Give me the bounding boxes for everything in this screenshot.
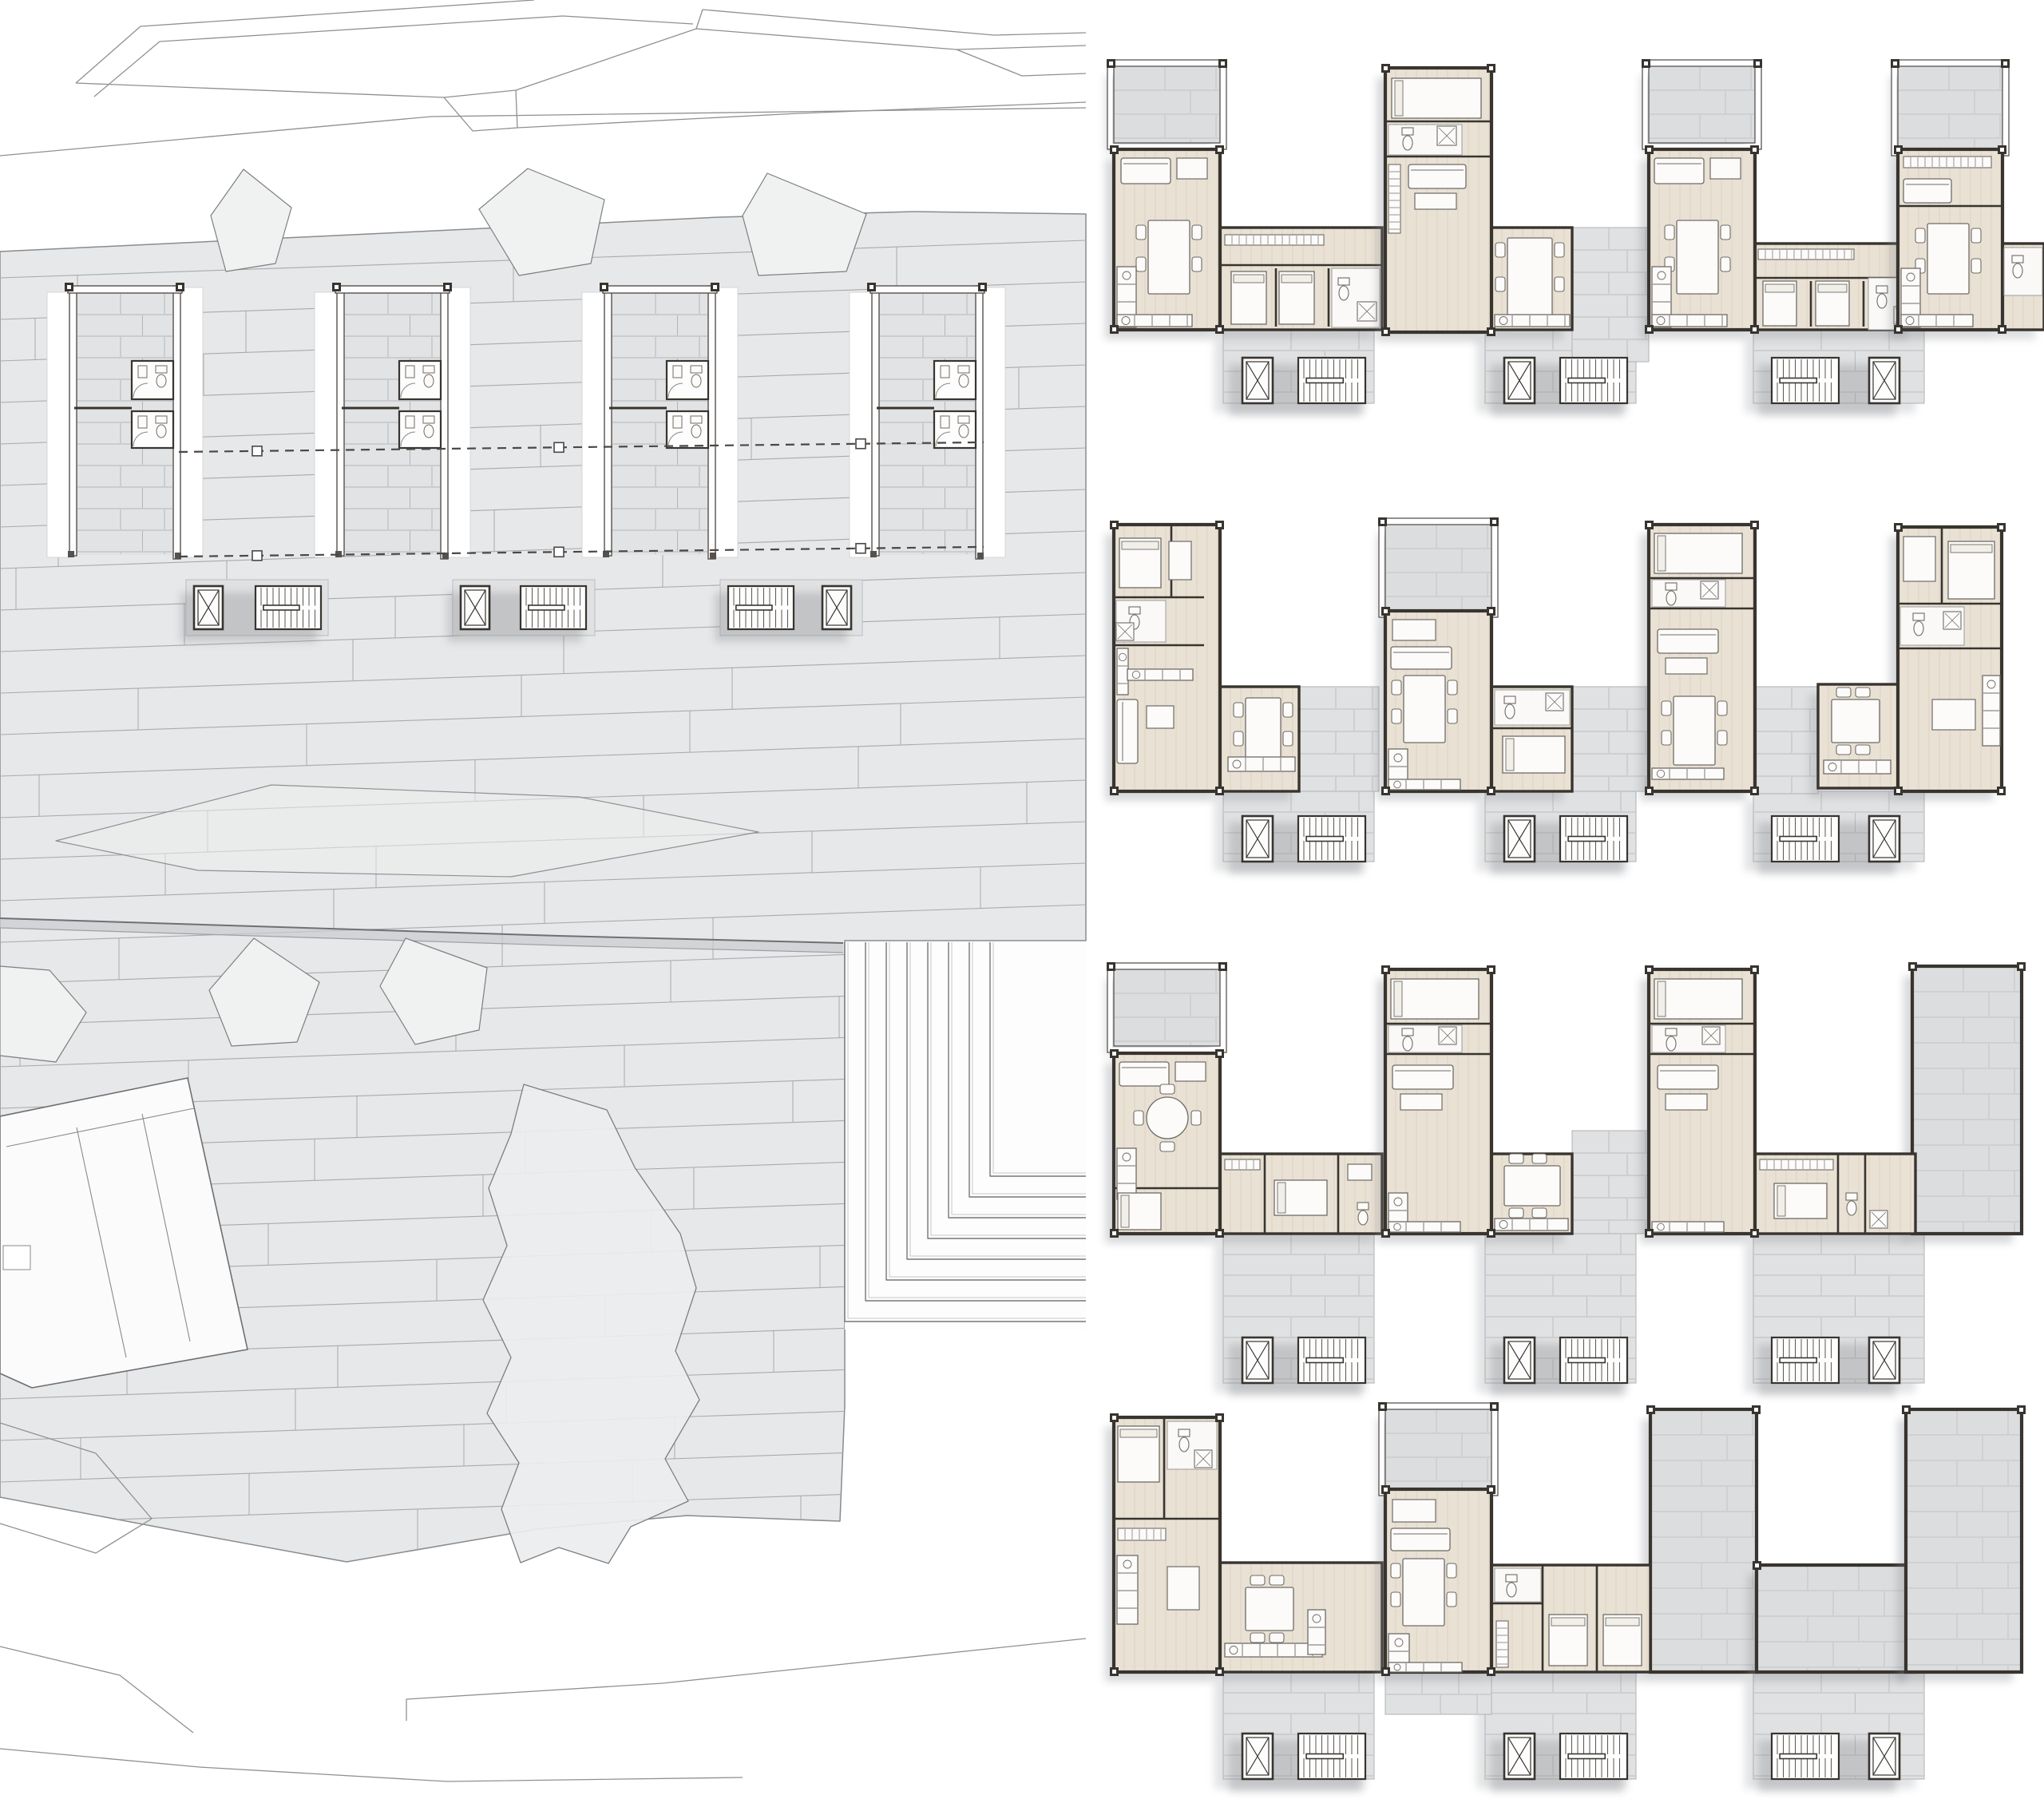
walled-terrace — [1748, 1561, 1919, 1682]
wall-post — [1997, 523, 2006, 532]
toilet-tank — [1876, 286, 1888, 293]
furniture-sofa — [1392, 1065, 1453, 1089]
post-inner — [980, 285, 984, 289]
post-inner — [1904, 1408, 1908, 1412]
stair-run — [1772, 358, 1839, 403]
pod-sink — [406, 366, 414, 378]
post-inner — [1218, 1052, 1222, 1056]
bed-pillow — [1658, 981, 1666, 1016]
toilet-bowl — [691, 374, 701, 387]
toilet-tank — [958, 366, 969, 373]
tile-slab — [1385, 1409, 1491, 1489]
counter-body — [1117, 315, 1192, 327]
post-inner — [2000, 148, 2004, 152]
furniture-chair — [1532, 1154, 1547, 1163]
furniture-sideboard — [1415, 193, 1456, 209]
stair-run — [1298, 358, 1365, 403]
furniture-sofa — [1654, 158, 1704, 184]
toilet-tank — [1402, 128, 1413, 135]
tile-slab — [1114, 969, 1220, 1046]
toilet-fixture — [1178, 1429, 1190, 1452]
wall-post — [1902, 1405, 1911, 1414]
bathroom-pod — [934, 361, 976, 399]
wall-post — [1381, 1485, 1390, 1494]
wall-post — [1998, 145, 2006, 154]
furniture-sideboard — [1710, 158, 1741, 179]
counter-body — [1117, 1148, 1136, 1199]
bed-pillow — [1506, 739, 1514, 771]
tile-slab — [1572, 1131, 1649, 1234]
tile-slab — [1906, 1409, 2022, 1672]
tie-marker — [554, 547, 564, 557]
wall-base-post — [710, 553, 716, 559]
post-inner — [1384, 789, 1388, 793]
contour-line — [76, 0, 534, 83]
post-inner — [2019, 1408, 2023, 1412]
bathroom-pod — [399, 361, 441, 399]
wardrobe-body — [1225, 235, 1324, 245]
circulation-core — [1758, 358, 1899, 416]
kitchen-counter — [1117, 648, 1128, 695]
wall-post — [1110, 1413, 1119, 1422]
walled-terrace — [1642, 1405, 1761, 1682]
wall-post — [1215, 1413, 1224, 1422]
wall-post — [1381, 327, 1390, 336]
circulation-core — [1229, 816, 1365, 874]
sofa-body — [1121, 158, 1171, 184]
furniture-bed — [1948, 541, 1994, 599]
terrace-gap — [315, 292, 339, 557]
table-top — [1246, 698, 1281, 765]
elevator-shaft — [1504, 1337, 1535, 1383]
wall-post — [1381, 607, 1390, 616]
wall-post — [1381, 1229, 1390, 1238]
stair-rail — [1780, 378, 1816, 383]
post-inner — [1380, 520, 1384, 524]
wall-post — [1381, 787, 1390, 795]
stair-rail — [1568, 1754, 1605, 1759]
furniture-chair — [1448, 709, 1457, 723]
furniture-chair — [1509, 1154, 1523, 1163]
wall-post — [1215, 325, 1224, 334]
tie-marker — [856, 544, 866, 553]
kitchen-counter — [1652, 315, 1727, 327]
kitchen-counter — [1117, 1148, 1136, 1199]
toilet-bowl — [1403, 136, 1412, 150]
unit-wall-cap — [335, 286, 450, 293]
furniture-chair — [1160, 1142, 1175, 1151]
post-inner — [1112, 148, 1116, 152]
furniture-chair — [1270, 1575, 1284, 1585]
wall-post — [1645, 145, 1654, 154]
furniture-bed — [1603, 1615, 1642, 1666]
post-inner — [1489, 1231, 1493, 1235]
toilet-fixture — [1913, 613, 1924, 636]
apartment-unit — [1377, 965, 1572, 1243]
kitchen-counter — [1308, 1610, 1325, 1654]
tile-slab — [1757, 1565, 1915, 1672]
wall-post — [1487, 1667, 1495, 1676]
post-inner — [1893, 61, 1897, 65]
wall-post — [1487, 1229, 1495, 1238]
contour-line — [0, 108, 1086, 156]
stair-run — [1772, 816, 1839, 862]
tiled-surface — [1912, 966, 2022, 1234]
post-inner — [1647, 968, 1651, 972]
tiled-surface — [1114, 969, 1220, 1046]
pod-sink — [406, 416, 414, 428]
counter-body — [1117, 648, 1128, 695]
unit-wall — [976, 286, 983, 559]
post-inner — [1384, 1488, 1388, 1492]
terrace-gap — [582, 292, 606, 557]
stair-run — [1298, 1734, 1365, 1779]
wall-post — [1107, 962, 1115, 971]
post-inner — [1753, 1231, 1757, 1235]
post-inner — [1896, 789, 1900, 793]
unit-wall-cap — [68, 286, 182, 293]
stair-rail — [263, 605, 299, 610]
wall-post — [1378, 1402, 1387, 1411]
furniture-sofa — [1391, 1528, 1450, 1551]
pod-sink — [138, 416, 147, 428]
wall-post — [332, 283, 341, 291]
toilet-fixture — [1666, 1028, 1677, 1051]
elevator-shaft — [1242, 816, 1273, 862]
table-top — [1246, 1587, 1293, 1631]
table-top — [1148, 220, 1190, 294]
post-inner — [1112, 523, 1116, 527]
furniture-chair — [1509, 1208, 1523, 1218]
furniture-chair — [1856, 745, 1870, 755]
tiled-surface — [1757, 1565, 1915, 1672]
toilet-tank — [1506, 1575, 1517, 1582]
elevator-shaft — [1869, 816, 1899, 862]
furniture-sideboard — [1903, 537, 1935, 581]
bed-pillow — [1281, 275, 1312, 283]
furniture-chair — [1915, 228, 1925, 243]
elevator-shaft — [1504, 1734, 1535, 1779]
wall-post — [443, 283, 452, 291]
wall-post — [1487, 1485, 1495, 1494]
post-inner — [1112, 789, 1116, 793]
furniture-chair — [1192, 225, 1202, 240]
contour-line — [76, 29, 1086, 97]
wardrobe — [1388, 164, 1400, 233]
walled-terrace — [1897, 1405, 2026, 1682]
wall-post — [1110, 1667, 1119, 1676]
tie-marker — [856, 439, 866, 449]
contour-line — [517, 102, 1086, 128]
wall-post — [1381, 1667, 1390, 1676]
stair-rail — [1780, 837, 1816, 842]
wardrobe — [1496, 1621, 1508, 1667]
toilet-bowl — [1339, 286, 1349, 300]
bathroom-pod — [399, 411, 441, 448]
wardrobe-body — [1760, 1159, 1833, 1170]
bed-pillow — [1551, 1618, 1585, 1626]
post-inner — [1221, 965, 1225, 969]
wall-post — [1215, 787, 1224, 795]
counter-body — [1117, 1555, 1138, 1624]
furniture-bed — [1503, 736, 1565, 773]
toilet-fixture — [1666, 583, 1677, 605]
post-inner — [1753, 523, 1757, 527]
post-inner — [1112, 1670, 1116, 1674]
shower-fixture — [1439, 1027, 1456, 1044]
furniture-chair — [1662, 701, 1671, 715]
post-inner — [1384, 1670, 1388, 1674]
pod-sink — [941, 366, 949, 378]
kitchen-counter — [1228, 757, 1295, 771]
shower-fixture — [1546, 693, 1563, 711]
tiled-surface — [1299, 687, 1379, 791]
pod-sink — [941, 416, 949, 428]
furniture-bed — [1118, 1193, 1161, 1230]
furniture-chair — [1270, 1633, 1284, 1643]
kitchen-counter — [1117, 315, 1192, 327]
post-inner — [1489, 1670, 1493, 1674]
tile-slab — [1649, 66, 1755, 143]
bed-pillow — [1606, 1618, 1639, 1626]
furniture-bed — [1774, 1183, 1827, 1219]
bed-frame — [1391, 979, 1479, 1019]
toilet-bowl — [424, 425, 434, 438]
counter-body — [1901, 315, 1973, 327]
wall-post — [1215, 145, 1224, 154]
post-inner — [1896, 327, 1900, 331]
post-inner — [1380, 1405, 1384, 1409]
bed-pillow — [1951, 545, 1992, 553]
wall-post — [1215, 1049, 1224, 1058]
counter-body — [1495, 1219, 1568, 1230]
roof-terrace — [1889, 59, 2010, 159]
stair-run — [1298, 816, 1365, 862]
circulation-core — [1758, 1337, 1899, 1396]
steps-ground — [845, 942, 1086, 1329]
post-inner — [1489, 1488, 1493, 1492]
site-unit-frame — [315, 283, 470, 559]
kitchen-counter — [1652, 768, 1724, 779]
stair-rail — [1780, 1358, 1816, 1363]
toilet-tank — [1178, 1429, 1190, 1436]
toilet-fixture — [1402, 128, 1413, 150]
toilet-bowl — [959, 425, 969, 438]
stair-run — [521, 586, 586, 629]
roof-terrace — [1377, 1402, 1499, 1499]
toilet-fixture — [1876, 286, 1888, 308]
post-inner — [1384, 330, 1388, 334]
tiled-surface — [1572, 687, 1649, 791]
furniture-sideboard — [1177, 158, 1207, 179]
post-inner — [1109, 965, 1113, 969]
post-inner — [1489, 330, 1493, 334]
sofa-body — [1391, 647, 1452, 669]
toilet-tank — [156, 416, 167, 423]
stair-rail — [1568, 378, 1605, 383]
furniture-chair — [1283, 703, 1293, 717]
furniture-bed — [1549, 1615, 1587, 1666]
tiled-surface — [1572, 228, 1649, 362]
shower-fixture — [1870, 1211, 1888, 1228]
furniture-bed — [1118, 1426, 1159, 1482]
kitchen-counter — [1983, 676, 2000, 746]
toilet-fixture — [1402, 1028, 1413, 1051]
furniture-chair — [1532, 1208, 1547, 1218]
furniture-sideboard — [1392, 1500, 1436, 1522]
kitchen-counter — [1388, 749, 1408, 781]
wall-post — [1750, 787, 1759, 795]
wall-post — [600, 283, 608, 291]
furniture-sofa — [1391, 647, 1452, 669]
counter-body — [1495, 315, 1570, 327]
shower-fixture — [1437, 126, 1456, 145]
terrace-gap — [47, 292, 71, 557]
kitchen-counter — [1824, 760, 1891, 774]
furniture-sofa — [1121, 158, 1171, 184]
stair-rail — [1306, 1358, 1343, 1363]
row-2 — [1105, 517, 2006, 874]
toilet-tank — [1504, 696, 1515, 703]
kitchen-counter — [1652, 1222, 1724, 1232]
wall-post — [867, 283, 876, 291]
post-inner — [1109, 61, 1113, 65]
toilet-bowl — [1505, 704, 1515, 719]
pod-sink — [673, 416, 682, 428]
post-inner — [1754, 1408, 1758, 1412]
table-top — [1504, 1166, 1560, 1206]
furniture-bed — [1392, 78, 1481, 118]
tile-slab — [1114, 66, 1220, 143]
wall-post — [1215, 521, 1224, 529]
post-inner — [1112, 1231, 1116, 1235]
elevator-shaft — [1242, 358, 1273, 403]
post-inner — [602, 285, 606, 289]
shower-fixture — [1116, 623, 1134, 640]
toilet-tank — [1913, 613, 1924, 620]
post-inner — [1489, 609, 1493, 613]
post-inner — [335, 285, 339, 289]
stair-rail — [1306, 837, 1343, 842]
wardrobe-body — [1903, 157, 1991, 168]
toilet-tank — [423, 416, 434, 423]
elevator-shaft — [1869, 1337, 1899, 1383]
toilet-bowl — [1666, 1036, 1676, 1051]
furniture-chair — [1856, 688, 1870, 697]
furniture-chair — [1495, 277, 1505, 291]
bed-frame — [1654, 533, 1742, 573]
toilet-fixture — [1504, 696, 1515, 719]
toilet-bowl — [1179, 1437, 1189, 1452]
tiled-surface — [1114, 66, 1220, 143]
toilet-tank — [1402, 1028, 1413, 1036]
wall-post — [1381, 64, 1390, 73]
floor-plans — [1105, 59, 2044, 1792]
circulation-core — [1491, 1337, 1627, 1396]
wall-post — [1750, 145, 1759, 154]
post-inner — [1911, 965, 1915, 969]
wall-base-post — [870, 551, 877, 557]
counter-body — [1824, 760, 1891, 774]
roof-terrace — [1377, 517, 1499, 620]
furniture-chair — [1662, 731, 1671, 745]
wall-post — [1110, 521, 1119, 529]
table-top — [1927, 224, 1969, 294]
unit-wall — [708, 286, 715, 559]
wall-base-post — [68, 551, 74, 557]
apartment-unit — [1105, 59, 1382, 339]
furniture-chair — [1555, 243, 1564, 257]
furniture-chair — [1665, 225, 1674, 240]
wall-post — [1752, 1405, 1761, 1414]
post-inner — [1755, 1563, 1759, 1567]
unit-wall — [69, 292, 77, 556]
counter-body — [1388, 779, 1460, 790]
stair-run — [728, 586, 794, 629]
tie-marker — [554, 442, 564, 452]
wall-post — [1487, 607, 1495, 616]
contour-line — [0, 1749, 743, 1781]
wall-post — [1894, 523, 1903, 532]
tiled-surface — [1385, 1409, 1491, 1489]
wall-post — [1645, 325, 1654, 334]
bed-frame — [1654, 979, 1742, 1019]
bed-pillow — [1277, 1183, 1285, 1213]
toilet-bowl — [1358, 1211, 1368, 1225]
contour-line — [94, 16, 693, 97]
furniture-chair — [1721, 257, 1730, 271]
toilet-bowl — [1403, 1036, 1412, 1051]
site-unit-frame — [582, 283, 738, 559]
wardrobe — [1118, 1528, 1166, 1540]
post-inner — [1384, 1231, 1388, 1235]
furniture-sofa — [1119, 1062, 1169, 1086]
sofa-body — [1117, 699, 1138, 763]
toilet-tank — [1666, 583, 1677, 590]
kitchen-counter — [1117, 1555, 1138, 1624]
post-inner — [869, 285, 873, 289]
roof-terrace — [1105, 962, 1227, 1056]
post-inner — [1112, 327, 1116, 331]
table-top — [1404, 676, 1445, 743]
furniture-chair — [1134, 1111, 1143, 1125]
table-top — [1147, 1097, 1188, 1139]
wall-post — [1107, 59, 1115, 68]
terrace-gap — [981, 287, 1005, 557]
apartment-unit — [1809, 523, 2006, 801]
toilet-tank — [1338, 278, 1349, 285]
terrace-gap — [850, 292, 873, 557]
post-inner — [1492, 520, 1496, 524]
wall-post — [1646, 1405, 1655, 1414]
kitchen-counter — [1127, 669, 1193, 680]
toilet-bowl — [959, 374, 969, 387]
post-inner — [1218, 789, 1222, 793]
tiled-surface — [1650, 1409, 1757, 1672]
stair-rail — [1306, 378, 1343, 383]
counter-body — [1308, 1610, 1325, 1654]
walled-terrace — [1903, 962, 2026, 1243]
tiled-surface — [1755, 687, 1818, 794]
wall-post — [1891, 59, 1899, 68]
wall-post — [1378, 517, 1387, 526]
toilet-bowl — [2013, 264, 2022, 278]
furniture-chair — [1191, 1111, 1201, 1125]
stair-run — [1298, 1337, 1365, 1383]
counter-body — [1228, 757, 1295, 771]
post-inner — [1647, 523, 1651, 527]
wall-post — [1215, 1229, 1224, 1238]
